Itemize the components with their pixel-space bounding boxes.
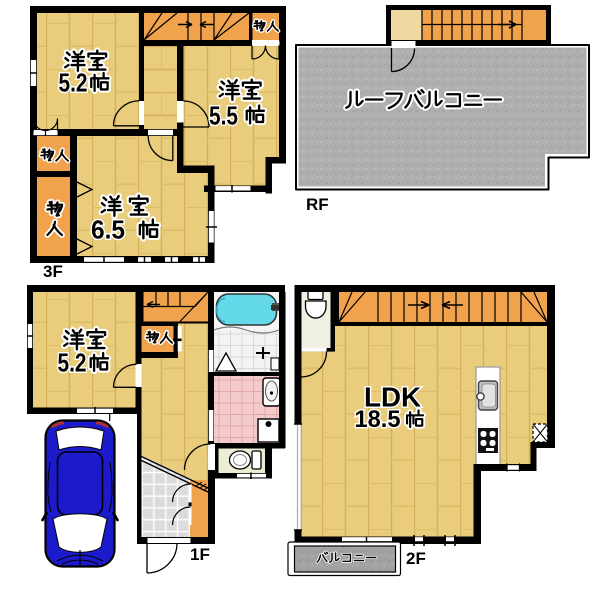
svg-text:2F: 2F xyxy=(406,549,426,568)
svg-text:3F: 3F xyxy=(43,262,63,281)
svg-text:1F: 1F xyxy=(190,545,210,564)
svg-text:6.5: 6.5 xyxy=(91,215,125,245)
svg-text:5.2: 5.2 xyxy=(59,68,88,98)
svg-text:RF: RF xyxy=(306,195,329,214)
svg-text:5.5: 5.5 xyxy=(209,101,238,131)
svg-text:5.2: 5.2 xyxy=(58,348,87,378)
svg-text:18.5: 18.5 xyxy=(355,406,401,433)
